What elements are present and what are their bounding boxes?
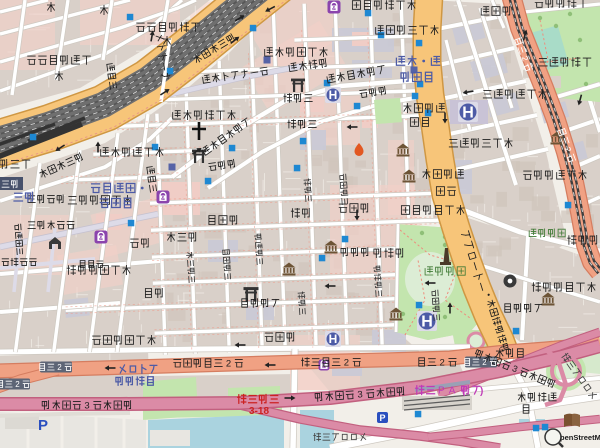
svg-text:P: P	[438, 386, 445, 397]
svg-text:2: 2	[57, 363, 62, 372]
svg-text:H: H	[421, 313, 433, 330]
svg-text:2: 2	[344, 357, 349, 368]
svg-text:P: P	[379, 413, 385, 423]
svg-text:A: A	[449, 386, 456, 397]
svg-text:): )	[480, 386, 483, 397]
svg-text:P: P	[38, 417, 48, 434]
svg-text:penStreetMap: penStreetMap	[560, 433, 600, 442]
svg-text:H: H	[462, 104, 474, 121]
svg-text:2: 2	[482, 358, 487, 367]
svg-text:2: 2	[439, 357, 444, 368]
svg-text:&: &	[322, 364, 326, 370]
svg-text:&: &	[332, 6, 336, 12]
svg-text:H: H	[329, 332, 338, 346]
svg-text:H: H	[329, 88, 338, 102]
svg-text:&: &	[99, 236, 103, 242]
svg-text:3: 3	[357, 389, 363, 400]
svg-text:2: 2	[15, 380, 20, 389]
svg-text:&: &	[161, 196, 165, 202]
svg-text:3-18: 3-18	[249, 406, 269, 417]
svg-text:3: 3	[84, 400, 89, 411]
svg-text:2: 2	[226, 358, 231, 369]
